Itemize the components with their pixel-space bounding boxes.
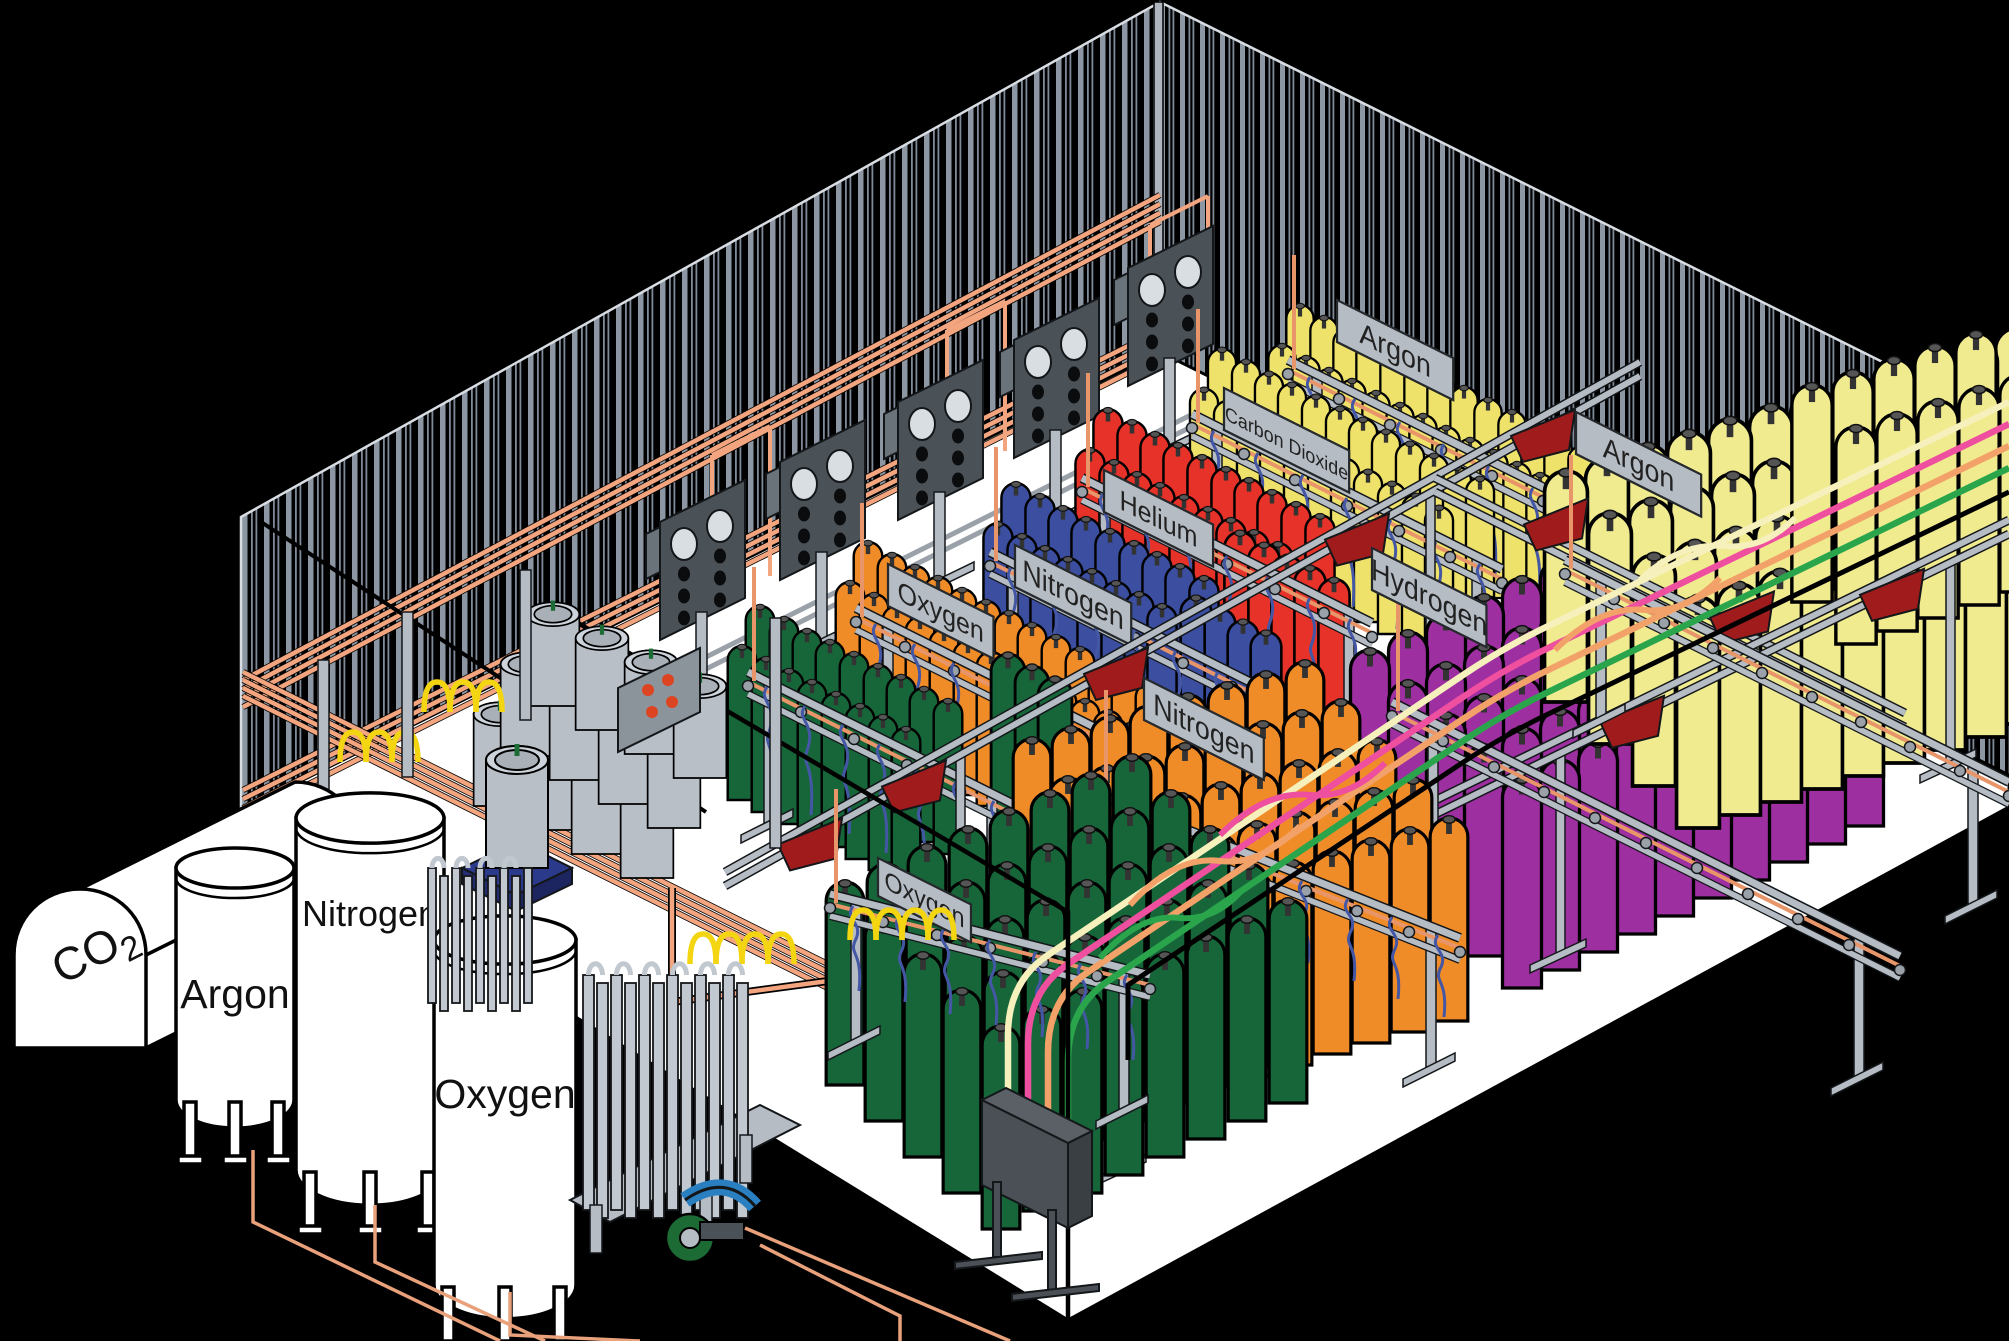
- svg-text:Oxygen: Oxygen: [434, 1071, 575, 1117]
- svg-text:Argon: Argon: [180, 971, 289, 1017]
- svg-text:Nitrogen: Nitrogen: [302, 893, 438, 934]
